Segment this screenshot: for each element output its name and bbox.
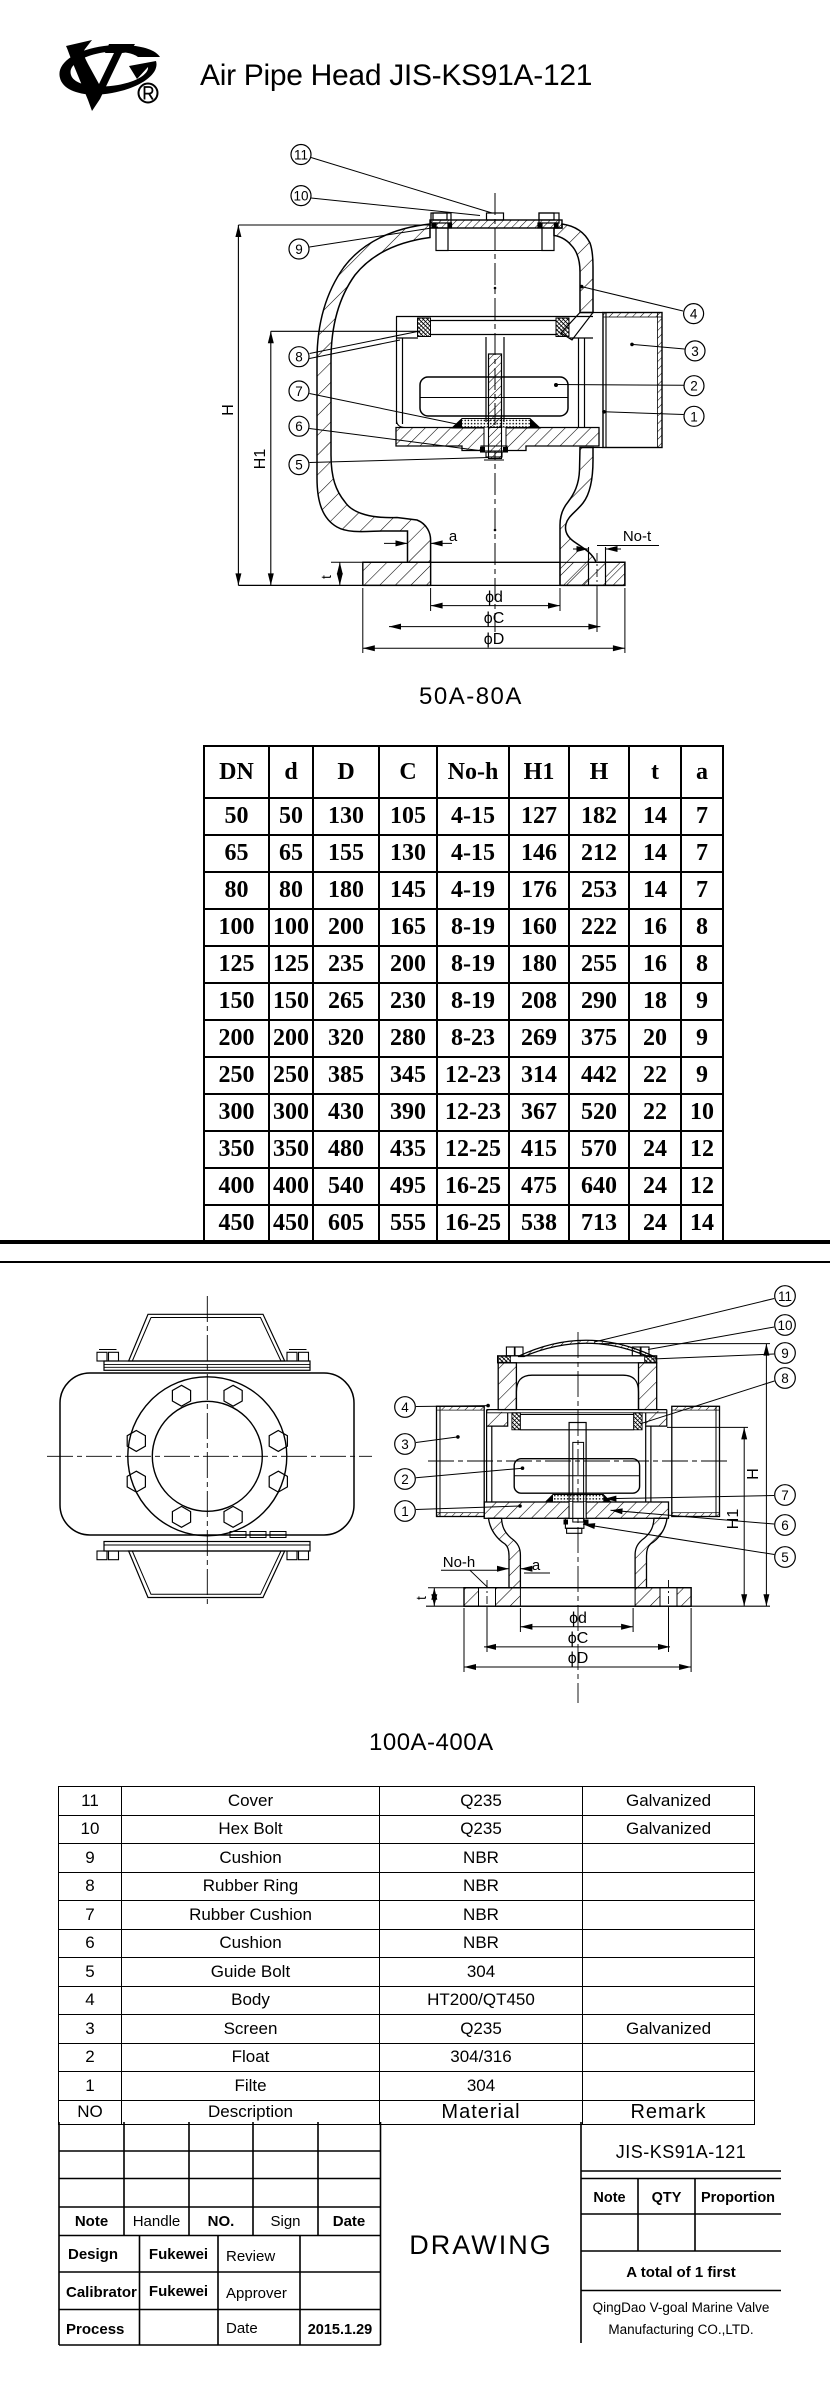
svg-text:Fukewei: Fukewei — [149, 2246, 208, 2263]
svg-text:ϕd: ϕd — [569, 1610, 587, 1627]
svg-text:9: 9 — [781, 1346, 789, 1361]
svg-text:Process: Process — [66, 2321, 124, 2338]
svg-text:A total of 1 first: A total of 1 first — [626, 2264, 735, 2281]
svg-text:No-h: No-h — [443, 1554, 476, 1571]
svg-text:ϕC: ϕC — [568, 1630, 589, 1647]
svg-text:2: 2 — [401, 1472, 409, 1487]
svg-text:Review: Review — [226, 2248, 275, 2265]
svg-text:8: 8 — [295, 350, 303, 365]
svg-text:Note: Note — [593, 2190, 625, 2206]
svg-text:5: 5 — [295, 458, 303, 473]
svg-text:a: a — [449, 528, 458, 545]
svg-text:9: 9 — [295, 242, 303, 257]
svg-text:NO.: NO. — [208, 2213, 235, 2230]
svg-text:2: 2 — [690, 379, 698, 394]
svg-text:1: 1 — [401, 1504, 409, 1519]
svg-text:10: 10 — [293, 189, 308, 204]
svg-text:Note: Note — [75, 2213, 108, 2230]
svg-text:ϕd: ϕd — [485, 589, 503, 606]
svg-text:4: 4 — [690, 307, 698, 322]
svg-text:QingDao V-goal Marine Valve: QingDao V-goal Marine Valve — [593, 2300, 770, 2315]
svg-text:ϕD: ϕD — [484, 631, 505, 648]
svg-text:3: 3 — [401, 1437, 409, 1452]
svg-text:Manufacturing CO.,LTD.: Manufacturing CO.,LTD. — [608, 2322, 753, 2337]
svg-text:QTY: QTY — [652, 2190, 682, 2206]
svg-text:6: 6 — [781, 1518, 789, 1533]
svg-text:7: 7 — [781, 1488, 789, 1503]
svg-text:5: 5 — [781, 1550, 789, 1565]
svg-text:Date: Date — [333, 2213, 366, 2230]
svg-text:t: t — [318, 575, 334, 579]
svg-text:Fukewei: Fukewei — [149, 2283, 208, 2300]
svg-text:Handle: Handle — [133, 2213, 181, 2230]
svg-text:3: 3 — [691, 344, 699, 359]
svg-text:t: t — [413, 1596, 429, 1600]
svg-text:11: 11 — [294, 148, 308, 163]
svg-text:H: H — [220, 404, 237, 416]
svg-text:Approver: Approver — [226, 2285, 287, 2302]
svg-text:ϕC: ϕC — [484, 610, 505, 627]
svg-text:Date: Date — [226, 2320, 258, 2337]
svg-text:H: H — [745, 1468, 762, 1480]
svg-text:8: 8 — [781, 1371, 789, 1386]
svg-text:7: 7 — [295, 384, 303, 399]
svg-text:DRAWING: DRAWING — [409, 2230, 553, 2260]
svg-text:Sign: Sign — [270, 2213, 300, 2230]
svg-text:11: 11 — [778, 1289, 792, 1304]
svg-text:2015.1.29: 2015.1.29 — [308, 2322, 373, 2338]
svg-text:No-t: No-t — [623, 528, 652, 545]
svg-text:H1: H1 — [725, 1509, 742, 1530]
svg-text:6: 6 — [295, 419, 303, 434]
svg-text:ϕD: ϕD — [568, 1650, 589, 1667]
svg-text:4: 4 — [401, 1400, 409, 1415]
svg-text:a: a — [532, 1557, 541, 1574]
svg-text:10: 10 — [777, 1318, 792, 1333]
svg-text:Calibrator: Calibrator — [66, 2284, 137, 2301]
svg-text:Proportion: Proportion — [701, 2190, 775, 2206]
svg-text:H1: H1 — [252, 449, 269, 470]
svg-text:1: 1 — [690, 409, 698, 424]
svg-text:JIS-KS91A-121: JIS-KS91A-121 — [616, 2142, 747, 2162]
svg-text:Design: Design — [68, 2246, 118, 2263]
